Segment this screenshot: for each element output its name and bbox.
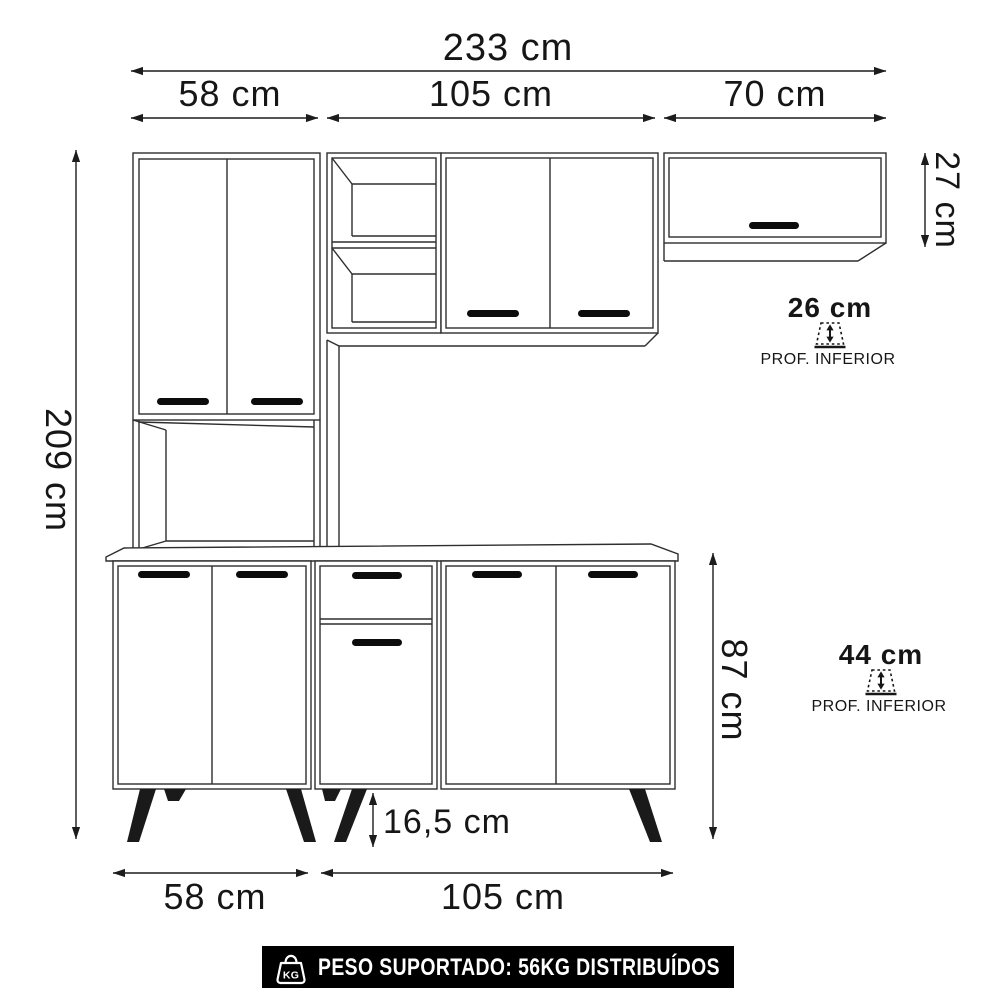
dim-label-base-height: 87 cm <box>714 638 755 741</box>
dim-label-leg-height: 16,5 cm <box>383 803 511 841</box>
cabinet-dimension-diagram: 233 cm 58 cm 105 cm 70 cm 209 cm 27 cm 8… <box>0 0 1000 1000</box>
dimension-total-width: 233 cm <box>131 27 886 71</box>
dimension-upper-right-cabinet-height: 27 cm <box>925 151 966 249</box>
cabinet-leg <box>286 789 316 842</box>
base-doors <box>446 566 670 784</box>
wall-cabinet-right <box>664 153 886 261</box>
door-handle <box>578 310 630 317</box>
door-handle <box>352 639 402 646</box>
dim-label-top-left-width: 58 cm <box>178 73 281 114</box>
cabinet-leg <box>334 789 367 842</box>
underside-bevel <box>858 243 886 261</box>
dimension-top-right-width: 70 cm <box>664 73 886 118</box>
wall-cabinet-middle <box>441 153 658 333</box>
dim-label-bottom-left-width: 58 cm <box>163 876 266 917</box>
dim-label-total-width: 233 cm <box>443 27 574 69</box>
door-handle <box>157 398 209 405</box>
dimension-total-height: 209 cm <box>38 150 79 839</box>
underside-bevel <box>645 333 658 346</box>
cabinet-leg <box>127 789 156 842</box>
base-cabinet-left <box>113 561 311 789</box>
depth-annotation-lower: 44 cm PROF. INFERIOR <box>811 639 946 715</box>
open-niche <box>133 420 320 550</box>
door-handle <box>588 571 638 578</box>
footer-text: PESO SUPORTADO: 56KG DISTRIBUÍDOS <box>318 953 720 981</box>
door-handle <box>472 571 522 578</box>
dim-label-total-height: 209 cm <box>38 408 79 532</box>
dimension-top-left-width: 58 cm <box>131 73 318 118</box>
footer-banner: KG PESO SUPORTADO: 56KG DISTRIBUÍDOS <box>262 946 734 988</box>
dimension-base-height: 87 cm <box>713 553 755 839</box>
door-handle <box>138 571 190 578</box>
countertop <box>106 544 678 561</box>
door-handle <box>467 310 519 317</box>
depth-arrow-icon <box>866 670 897 694</box>
drawer-handle <box>352 572 402 579</box>
lower-depth-value: 44 cm <box>839 639 923 670</box>
wall-shelf-unit <box>327 153 441 333</box>
dimension-bottom-left-width: 58 cm <box>113 873 308 917</box>
diagram-svg: 233 cm 58 cm 105 cm 70 cm 209 cm 27 cm 8… <box>0 0 1000 1000</box>
cabinet-leg-back <box>322 789 341 801</box>
kg-icon-label: KG <box>283 970 299 982</box>
cabinet-leg <box>629 789 662 842</box>
upper-depth-label: PROF. INFERIOR <box>760 351 895 368</box>
tall-cabinet <box>133 153 320 420</box>
niche-corner-line <box>133 420 166 430</box>
dim-label-top-right-width: 70 cm <box>723 73 826 114</box>
upper-depth-value: 26 cm <box>788 292 872 323</box>
dim-label-top-middle-width: 105 cm <box>429 73 553 114</box>
dim-label-bottom-middle-width: 105 cm <box>441 876 565 917</box>
dimension-bottom-middle-width: 105 cm <box>321 873 673 917</box>
door-handle <box>236 571 288 578</box>
cabinet-leg-back <box>164 789 186 801</box>
dimension-leg-height: 16,5 cm <box>373 793 511 847</box>
panel-bevel <box>327 340 339 346</box>
dimension-top-middle-width: 105 cm <box>327 73 655 118</box>
countertop-surface <box>106 544 678 561</box>
wall-unit-underside <box>339 333 658 346</box>
niche-top-line <box>139 422 314 427</box>
base-drawer-unit <box>315 561 437 789</box>
door-handle <box>749 222 799 229</box>
lower-depth-label: PROF. INFERIOR <box>811 698 946 715</box>
dim-label-upper-right-cabinet-height: 27 cm <box>928 151 966 249</box>
hutch-side-panel <box>327 340 339 549</box>
base-inner <box>320 566 432 784</box>
base-cabinet-right <box>441 561 675 789</box>
depth-arrow-icon <box>815 323 846 347</box>
depth-annotation-upper: 26 cm PROF. INFERIOR <box>760 292 895 368</box>
door-handle <box>251 398 303 405</box>
